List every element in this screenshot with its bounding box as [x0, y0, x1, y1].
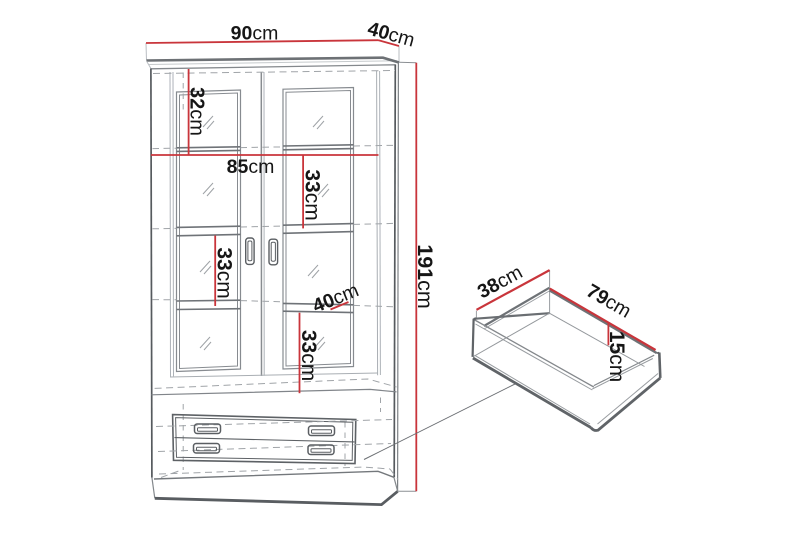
svg-text:32cm: 32cm [186, 87, 208, 136]
svg-text:33cm: 33cm [213, 247, 236, 298]
svg-text:90cm: 90cm [231, 22, 279, 44]
svg-text:79cm: 79cm [583, 280, 635, 323]
svg-text:191cm: 191cm [413, 244, 437, 309]
svg-text:33cm: 33cm [300, 169, 323, 220]
svg-text:40cm: 40cm [365, 18, 417, 52]
svg-text:33cm: 33cm [297, 330, 320, 381]
svg-text:85cm: 85cm [227, 156, 275, 178]
svg-text:15cm: 15cm [605, 331, 628, 382]
